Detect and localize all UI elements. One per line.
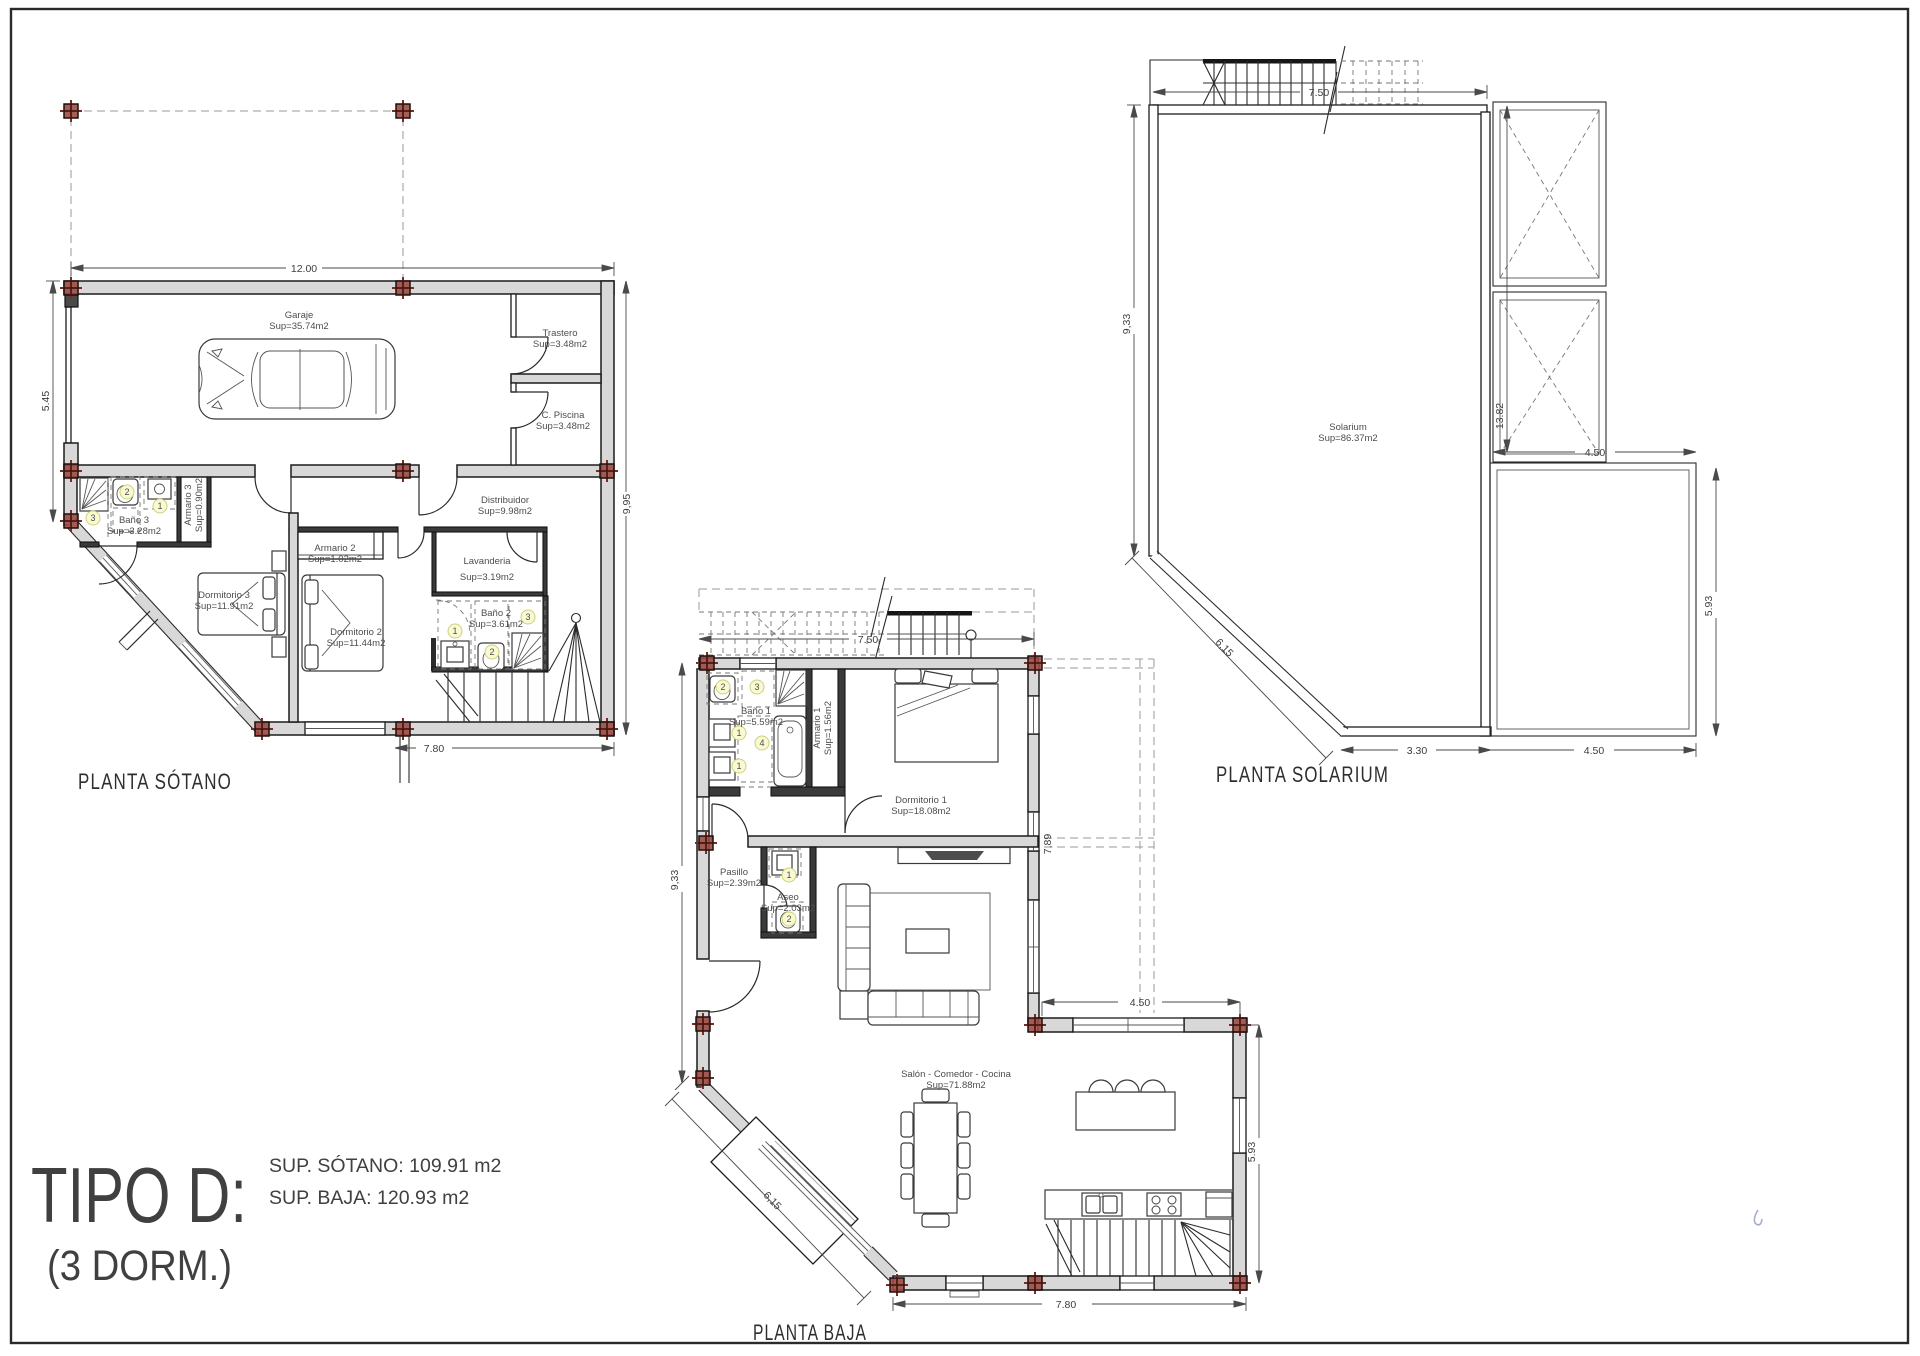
svg-text:2: 2 (786, 914, 791, 924)
svg-text:PLANTA SÓTANO: PLANTA SÓTANO (78, 769, 232, 794)
svg-text:Baño 3: Baño 3 (119, 515, 149, 526)
svg-text:1: 1 (157, 501, 162, 511)
svg-text:Distribuidor: Distribuidor (481, 495, 529, 506)
svg-text:9,95: 9,95 (621, 494, 633, 515)
svg-text:PLANTA BAJA: PLANTA BAJA (753, 1320, 867, 1345)
svg-text:1: 1 (736, 728, 741, 738)
svg-text:Armario 1: Armario 1 (812, 707, 823, 748)
svg-text:Baño 2: Baño 2 (481, 608, 511, 619)
svg-text:7.50: 7.50 (858, 634, 879, 646)
svg-text:5.45: 5.45 (40, 391, 52, 412)
svg-text:2: 2 (720, 682, 725, 692)
svg-text:SUP. SÓTANO: 109.91 m2: SUP. SÓTANO: 109.91 m2 (269, 1154, 501, 1177)
svg-text:9,33: 9,33 (669, 870, 681, 891)
svg-text:9,33: 9,33 (1121, 314, 1133, 335)
svg-text:Sup=3.48m2: Sup=3.48m2 (533, 339, 587, 350)
svg-text:5.93: 5.93 (1703, 596, 1715, 617)
svg-text:Sup=2.39m2: Sup=2.39m2 (707, 878, 761, 889)
svg-text:Aseo: Aseo (777, 892, 799, 903)
svg-text:SUP. BAJA: 120.93 m2: SUP. BAJA: 120.93 m2 (269, 1187, 469, 1209)
svg-text:7.80: 7.80 (1056, 1299, 1077, 1311)
svg-text:Pasillo: Pasillo (720, 867, 748, 878)
svg-text:1: 1 (736, 761, 741, 771)
svg-text:4.50: 4.50 (1585, 447, 1606, 459)
svg-text:Sup=11.44m2: Sup=11.44m2 (327, 638, 386, 649)
svg-text:Sup=3.19m2: Sup=3.19m2 (460, 572, 514, 583)
svg-text:Baño 1: Baño 1 (741, 706, 771, 717)
svg-text:Sup=1.56m2: Sup=1.56m2 (823, 701, 834, 755)
svg-text:Sup=3.28m2: Sup=3.28m2 (107, 526, 161, 537)
svg-text:7.50: 7.50 (1309, 87, 1330, 99)
svg-text:Sup=18.08m2: Sup=18.08m2 (891, 806, 950, 817)
svg-text:2: 2 (489, 647, 494, 657)
svg-text:3.30: 3.30 (1407, 745, 1428, 757)
svg-text:Sup=86.37m2: Sup=86.37m2 (1318, 433, 1377, 444)
svg-text:Sup=2.03m2: Sup=2.03m2 (761, 903, 815, 914)
svg-text:Lavanderia: Lavanderia (463, 556, 511, 567)
svg-text:Dormitorio 1: Dormitorio 1 (895, 795, 947, 806)
svg-text:Sup=11.91m2: Sup=11.91m2 (195, 601, 254, 612)
svg-text:Dormitorio 2: Dormitorio 2 (330, 627, 382, 638)
svg-text:Sup=3.48m2: Sup=3.48m2 (536, 421, 590, 432)
svg-text:13.82: 13.82 (1494, 403, 1506, 429)
svg-text:2: 2 (124, 487, 129, 497)
svg-text:PLANTA SOLARIUM: PLANTA SOLARIUM (1216, 762, 1389, 787)
svg-text:12.00: 12.00 (291, 263, 317, 275)
svg-text:Salón - Comedor - Cocina: Salón - Comedor - Cocina (901, 1069, 1012, 1080)
svg-text:3: 3 (90, 513, 95, 523)
svg-text:Sup=71.88m2: Sup=71.88m2 (926, 1080, 985, 1091)
svg-text:1: 1 (786, 870, 791, 880)
svg-text:Sup=1.02m2: Sup=1.02m2 (308, 554, 362, 565)
svg-text:Sup=35.74m2: Sup=35.74m2 (269, 321, 328, 332)
svg-text:4.50: 4.50 (1130, 997, 1151, 1009)
svg-text:Trastero: Trastero (542, 328, 577, 339)
svg-text:1: 1 (452, 626, 457, 636)
svg-text:3: 3 (525, 612, 530, 622)
svg-text:Garaje: Garaje (285, 310, 314, 321)
svg-text:TIPO D:: TIPO D: (31, 1151, 247, 1239)
svg-text:Sup=0.90m2: Sup=0.90m2 (194, 478, 205, 532)
svg-text:C. Piscina: C. Piscina (542, 410, 585, 421)
svg-text:5.93: 5.93 (1246, 1142, 1258, 1163)
svg-text:4: 4 (759, 738, 764, 748)
svg-text:7,89: 7,89 (1042, 834, 1054, 855)
svg-text:Sup=3.61m2: Sup=3.61m2 (469, 619, 523, 630)
svg-text:Sup=9.98m2: Sup=9.98m2 (478, 506, 532, 517)
svg-text:(3 DORM.): (3 DORM.) (47, 1242, 232, 1290)
svg-text:Solarium: Solarium (1329, 422, 1367, 433)
svg-text:3: 3 (754, 682, 759, 692)
svg-text:Dormitorio 3: Dormitorio 3 (198, 590, 250, 601)
svg-text:Armario 3: Armario 3 (183, 484, 194, 525)
svg-text:Armario 2: Armario 2 (314, 543, 355, 554)
svg-text:Sup=5.59m2: Sup=5.59m2 (729, 717, 783, 728)
svg-text:4.50: 4.50 (1584, 745, 1605, 757)
svg-text:7.80: 7.80 (424, 743, 445, 755)
